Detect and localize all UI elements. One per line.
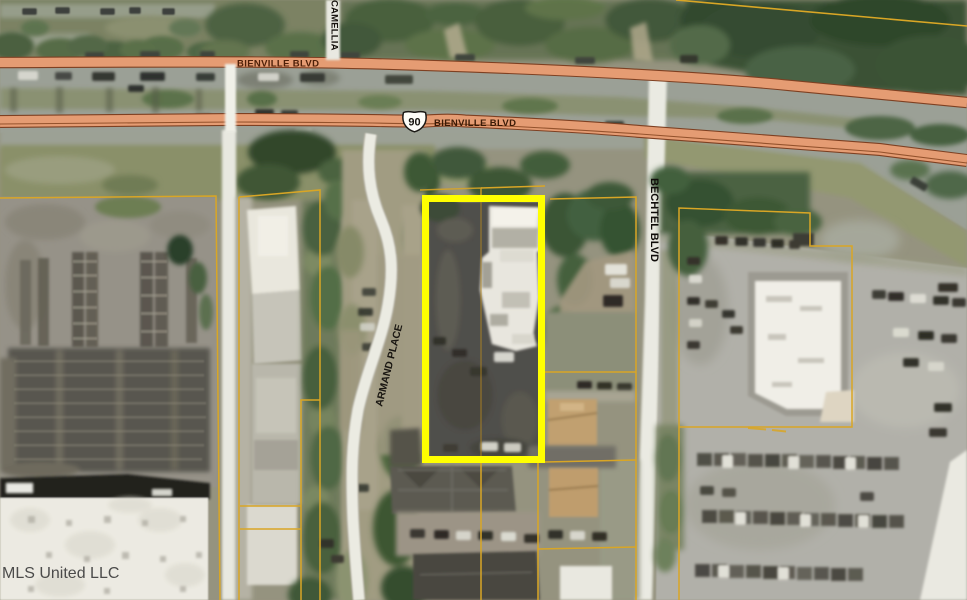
svg-text:BIENVILLE BLVD: BIENVILLE BLVD <box>237 59 319 70</box>
svg-text:90: 90 <box>408 117 420 129</box>
svg-text:BECHTEL BLVD: BECHTEL BLVD <box>648 178 660 262</box>
svg-text:BIENVILLE BLVD: BIENVILLE BLVD <box>434 118 516 129</box>
svg-text:MLS United LLC: MLS United LLC <box>2 565 119 582</box>
svg-text:CAMELLIA: CAMELLIA <box>329 0 340 51</box>
